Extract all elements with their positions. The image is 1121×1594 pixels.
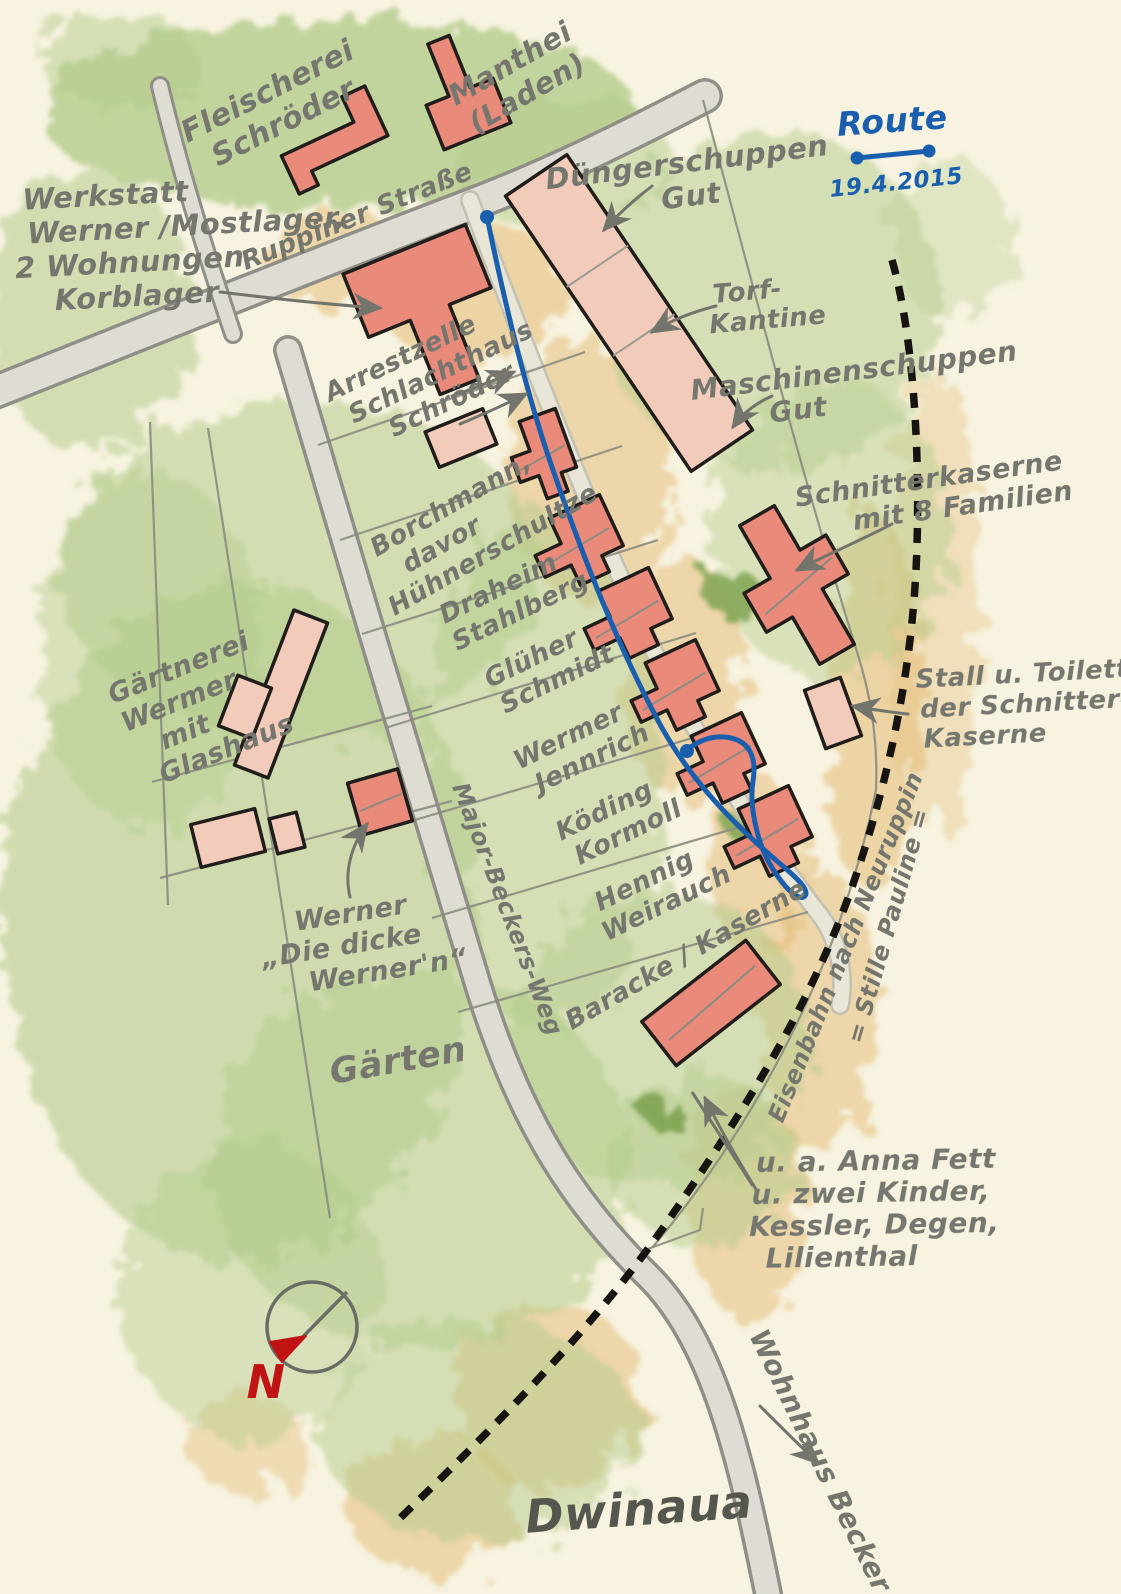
map-canvas: FleischereiSchröderManthei(Laden)Werksta… — [0, 0, 1121, 1594]
legend-dot — [923, 145, 936, 158]
hand-drawn-map: FleischereiSchröderManthei(Laden)Werksta… — [0, 0, 1121, 1594]
green-patch — [40, 10, 200, 110]
bush-patch — [643, 1098, 683, 1128]
label-compass-n: N — [247, 1355, 286, 1409]
route-end-dot — [680, 744, 694, 758]
route-start-dot — [480, 210, 494, 224]
building-pale-hut — [269, 812, 305, 854]
label-route-title: Route — [836, 97, 949, 144]
legend-dot — [851, 152, 864, 165]
